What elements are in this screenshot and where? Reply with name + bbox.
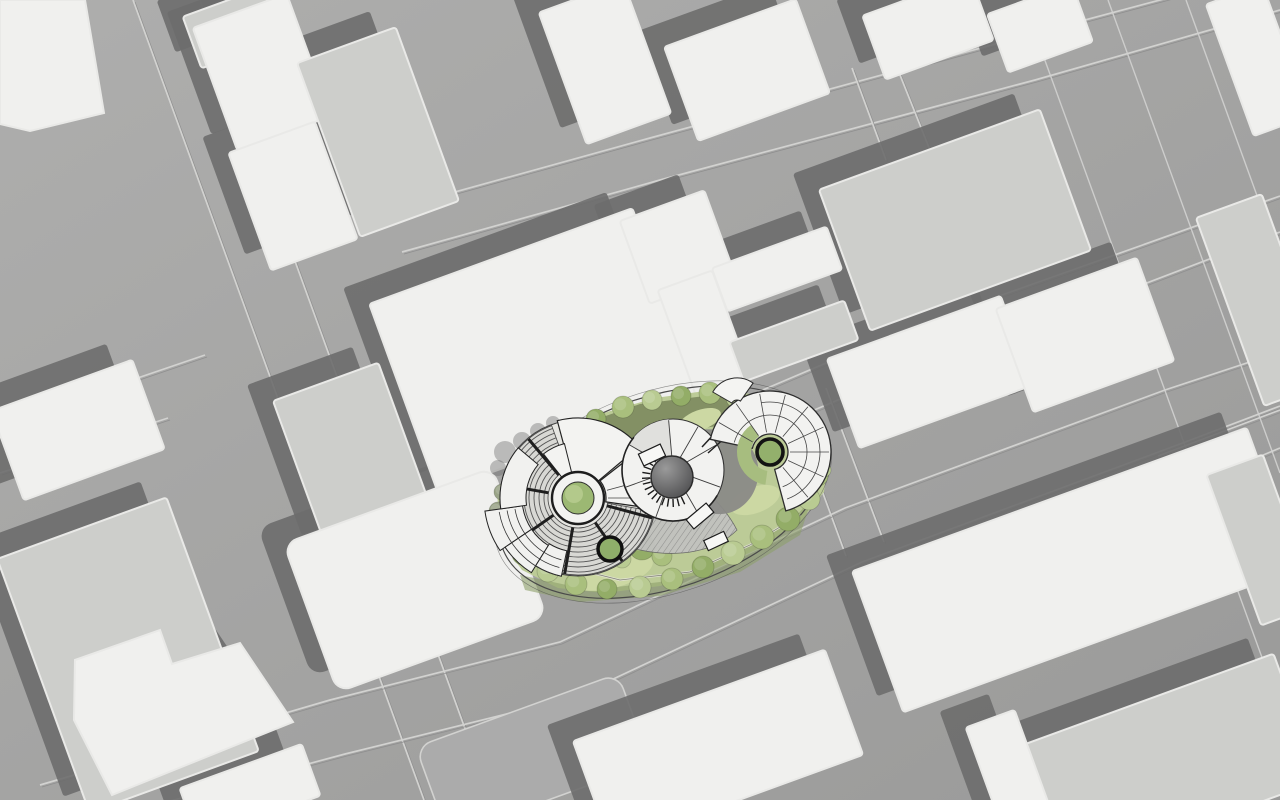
tree-highlight <box>614 398 626 410</box>
site-plan-render <box>0 0 1280 800</box>
tree-highlight <box>673 388 684 399</box>
tree-highlight <box>752 527 765 540</box>
tree-highlight <box>631 578 643 590</box>
dome <box>651 456 693 498</box>
tree-highlight <box>567 575 579 587</box>
city-map-canvas <box>0 0 1280 800</box>
tree-pit <box>598 537 622 561</box>
court-tree-highlight <box>565 485 583 503</box>
tree-highlight <box>644 392 655 403</box>
tree-highlight <box>778 509 791 522</box>
fan-courtyard-tree <box>757 439 783 465</box>
tree-highlight <box>701 384 713 396</box>
tree-highlight <box>599 581 610 592</box>
building <box>0 0 104 131</box>
tree-highlight <box>663 570 675 582</box>
tree-highlight <box>723 543 736 556</box>
tree-highlight <box>694 558 706 570</box>
